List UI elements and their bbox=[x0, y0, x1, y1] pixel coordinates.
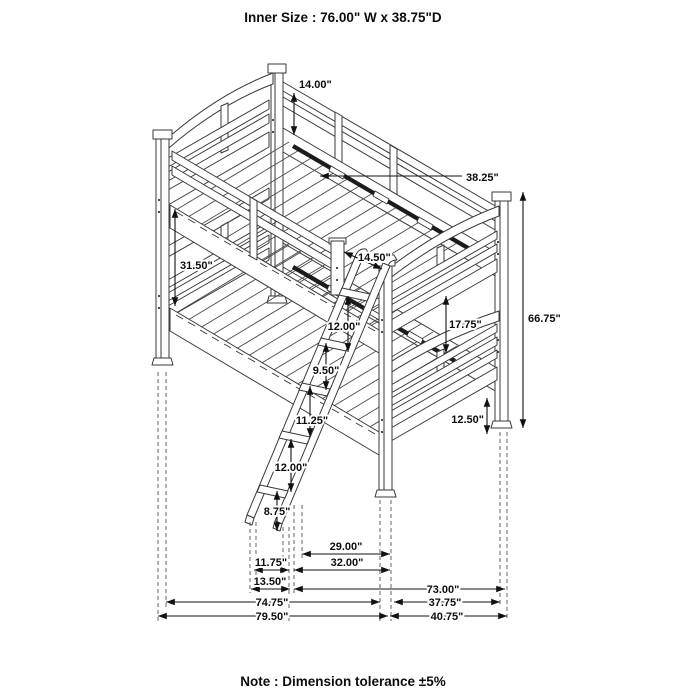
svg-text:73.00": 73.00" bbox=[427, 584, 460, 596]
svg-text:79.50": 79.50" bbox=[256, 611, 289, 623]
dimension-depth-overall: 40.75" bbox=[390, 611, 507, 623]
dimension-ladder-foot-inner: 11.75" bbox=[254, 557, 289, 570]
bunk-bed-drawing bbox=[152, 64, 512, 531]
dimension-ladder-base-span: 32.00" bbox=[294, 557, 390, 570]
svg-text:17.75": 17.75" bbox=[449, 319, 482, 331]
svg-text:66.75": 66.75" bbox=[528, 313, 561, 325]
dimension-overall-height: 66.75" bbox=[523, 192, 561, 428]
bunk-bed-diagram: Inner Size : 76.00" W x 38.75"D bbox=[0, 0, 700, 700]
svg-text:11.75": 11.75" bbox=[255, 557, 287, 569]
svg-text:9.50": 9.50" bbox=[313, 365, 340, 377]
svg-text:29.00": 29.00" bbox=[330, 541, 363, 553]
dimension-depth-inner: 37.75" bbox=[394, 597, 500, 609]
svg-text:14.50": 14.50" bbox=[358, 252, 391, 264]
svg-text:31.50": 31.50" bbox=[180, 260, 213, 272]
svg-text:14.00": 14.00" bbox=[299, 79, 332, 91]
dimension-floor-clear-span: 73.00" bbox=[294, 584, 505, 596]
svg-text:8.75": 8.75" bbox=[264, 506, 291, 518]
tolerance-note: Note : Dimension tolerance ±5% bbox=[240, 674, 445, 689]
svg-text:12.50": 12.50" bbox=[451, 414, 484, 426]
dimension-length-overall: 79.50" bbox=[158, 611, 388, 623]
dimension-diagram-page: Inner Size : 76.00" W x 38.75"D bbox=[0, 0, 700, 700]
svg-text:37.75": 37.75" bbox=[429, 597, 462, 609]
page-title: Inner Size : 76.00" W x 38.75"D bbox=[244, 10, 442, 25]
dimension-ladder-foot-outer: 13.50" bbox=[251, 576, 290, 589]
ladder bbox=[245, 249, 397, 531]
svg-text:32.00": 32.00" bbox=[331, 557, 364, 569]
svg-text:11.25": 11.25" bbox=[296, 415, 328, 427]
svg-text:38.25": 38.25" bbox=[466, 172, 499, 184]
svg-text:12.00": 12.00" bbox=[328, 321, 361, 333]
svg-text:13.50": 13.50" bbox=[254, 576, 287, 588]
dimension-length-inner: 74.75" bbox=[166, 597, 380, 609]
svg-text:74.75": 74.75" bbox=[256, 597, 289, 609]
svg-text:12.00": 12.00" bbox=[275, 462, 308, 474]
dimension-ladder-top-span: 29.00" bbox=[302, 541, 390, 554]
svg-text:40.75": 40.75" bbox=[431, 611, 464, 623]
